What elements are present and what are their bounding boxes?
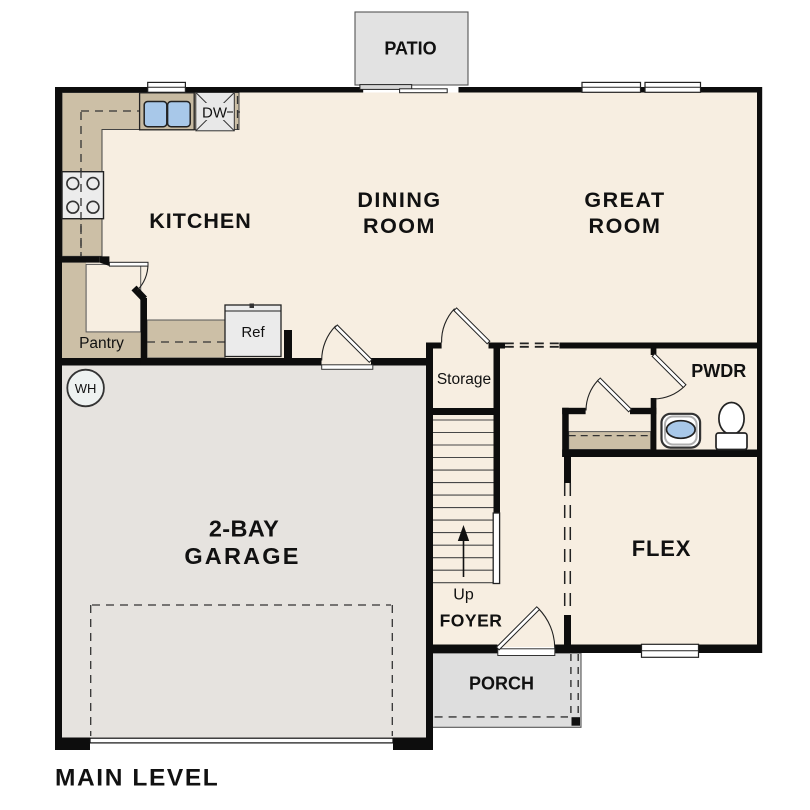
svg-text:ROOM: ROOM (589, 214, 662, 238)
svg-text:DINING: DINING (357, 188, 441, 212)
svg-text:FLEX: FLEX (632, 536, 691, 561)
svg-text:Pantry: Pantry (79, 335, 124, 352)
svg-text:Up: Up (453, 587, 474, 604)
svg-text:WH: WH (75, 381, 97, 396)
svg-text:MAIN LEVEL: MAIN LEVEL (55, 764, 219, 791)
svg-text:2-BAY: 2-BAY (209, 516, 279, 542)
svg-text:PWDR: PWDR (691, 361, 746, 381)
svg-text:DW: DW (202, 105, 228, 122)
svg-text:Ref: Ref (241, 324, 265, 341)
svg-text:PORCH: PORCH (469, 674, 534, 694)
svg-text:GREAT: GREAT (584, 188, 665, 212)
svg-text:KITCHEN: KITCHEN (149, 209, 252, 233)
svg-text:FOYER: FOYER (440, 611, 503, 631)
svg-text:PATIO: PATIO (384, 39, 436, 59)
svg-text:GARAGE: GARAGE (184, 543, 300, 569)
svg-text:ROOM: ROOM (363, 214, 436, 238)
svg-text:Storage: Storage (437, 371, 491, 388)
